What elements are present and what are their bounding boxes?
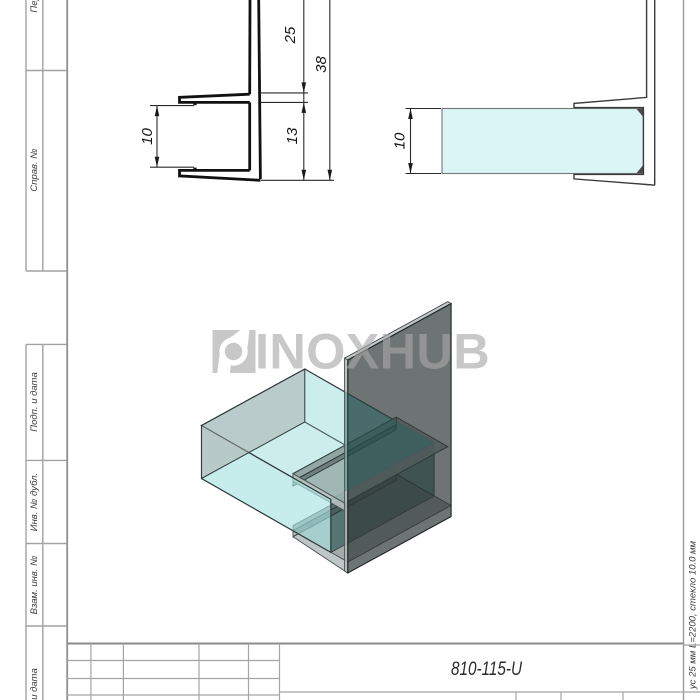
svg-text:Подп. и дата: Подп. и дата [29,372,40,431]
svg-text:10: 10 [139,128,156,145]
svg-text:13: 13 [284,127,301,144]
svg-text:38: 38 [313,56,330,73]
svg-text:25: 25 [282,26,299,44]
svg-text:ус 25 мм L=2200, стекло 10.0 м: ус 25 мм L=2200, стекло 10.0 мм [688,540,699,690]
svg-text:Инв. № дубл.: Инв. № дубл. [29,473,40,531]
svg-text:INOXHUB: INOXHUB [255,323,490,380]
svg-text:Справ. №: Справ. № [29,148,40,191]
svg-text:Перв. примен.: Перв. примен. [29,0,40,13]
svg-text:10: 10 [392,132,409,149]
svg-text:Подп. и дата: Подп. и дата [29,668,40,700]
svg-text:Взам. инв. №: Взам. инв. № [29,556,40,615]
svg-text:810-115-U: 810-115-U [451,659,522,680]
